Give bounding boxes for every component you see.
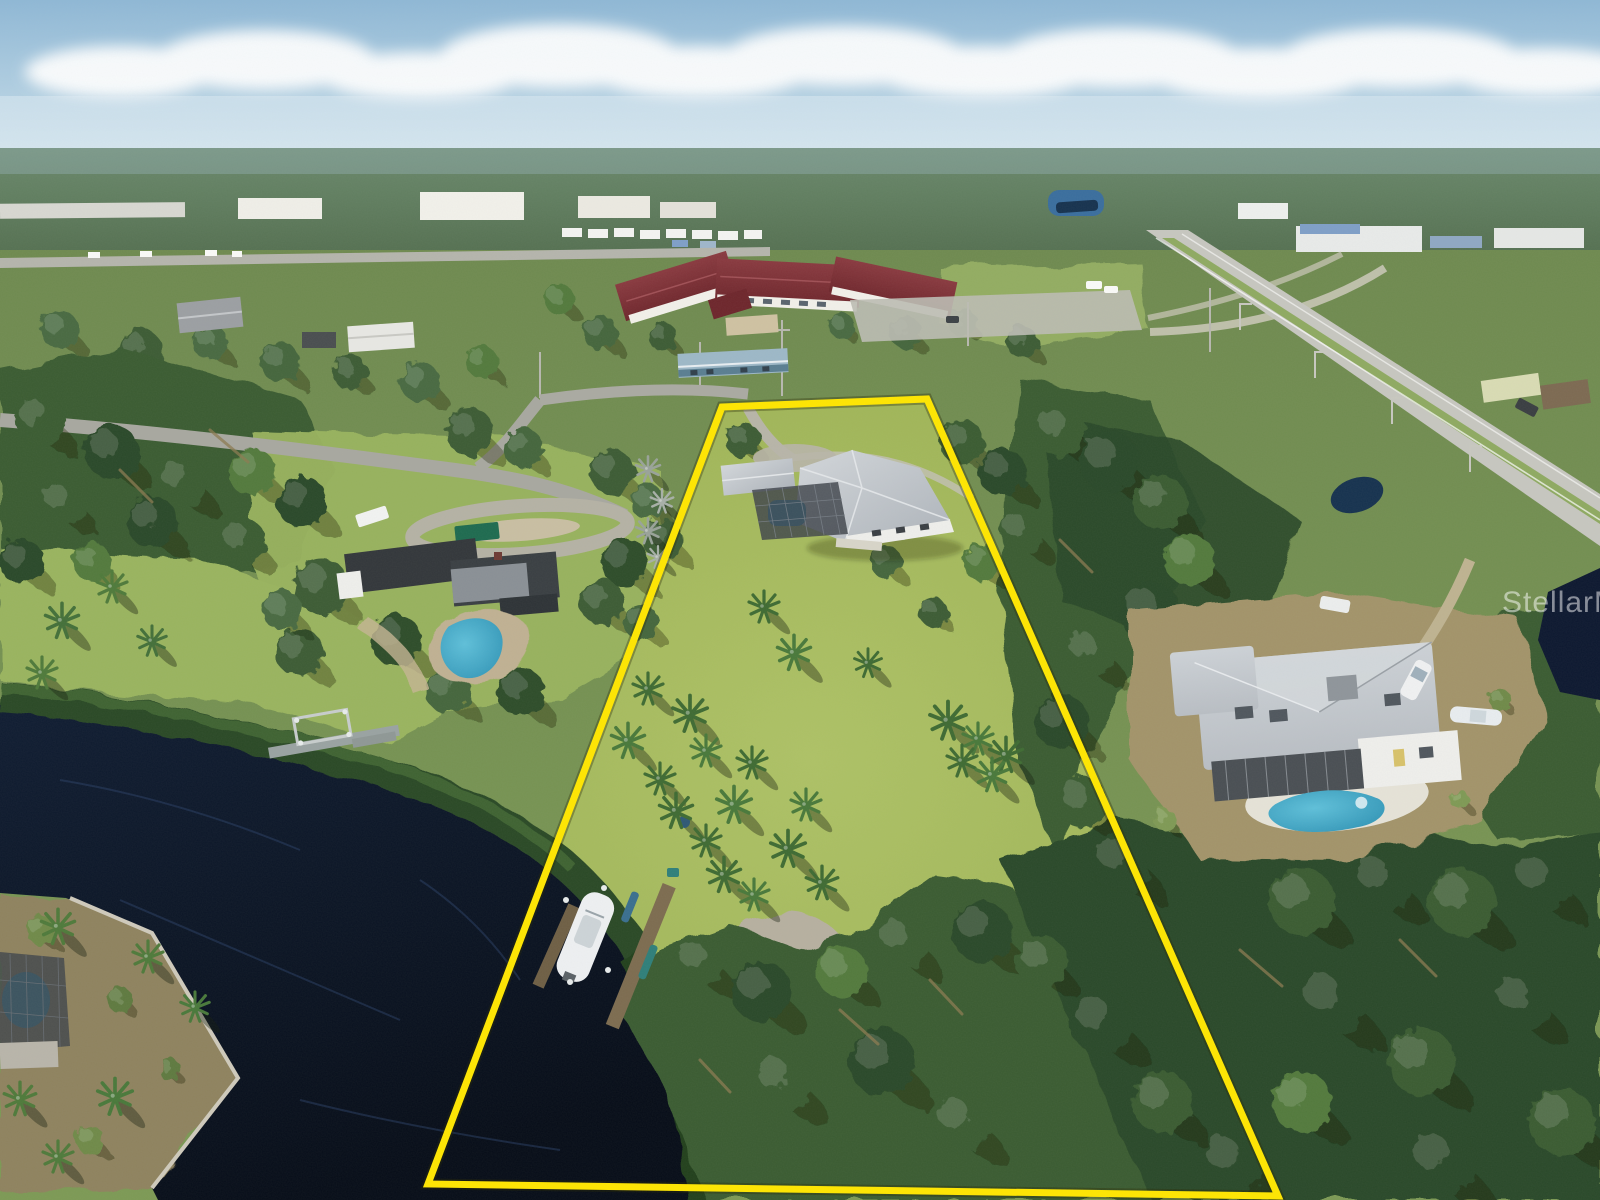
aerial-photo: StellarMLS — [0, 0, 1600, 1200]
photo-grain — [0, 0, 1600, 1200]
aerial-photo-canvas: StellarMLS — [0, 0, 1600, 1200]
stellar-mls-watermark: StellarMLS — [1502, 586, 1600, 619]
